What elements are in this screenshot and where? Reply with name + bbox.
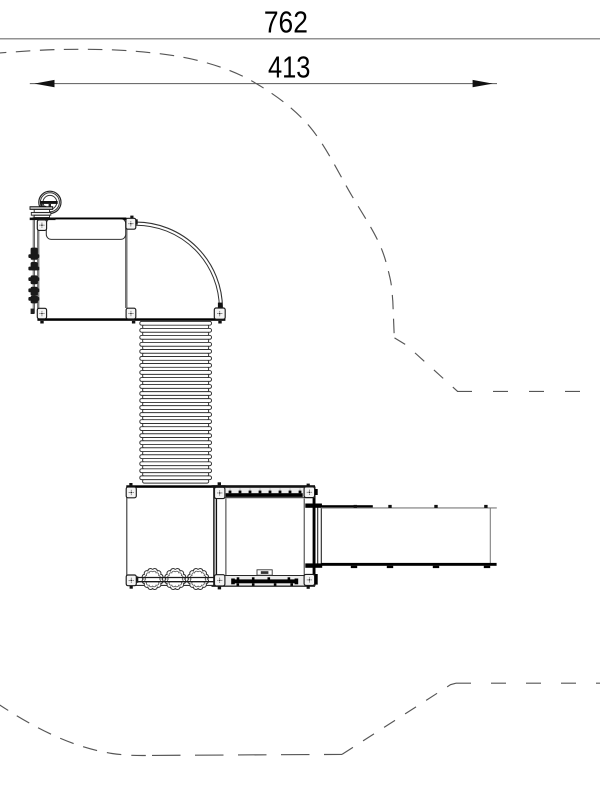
svg-text:413: 413 xyxy=(268,50,311,85)
svg-text:762: 762 xyxy=(264,5,308,40)
